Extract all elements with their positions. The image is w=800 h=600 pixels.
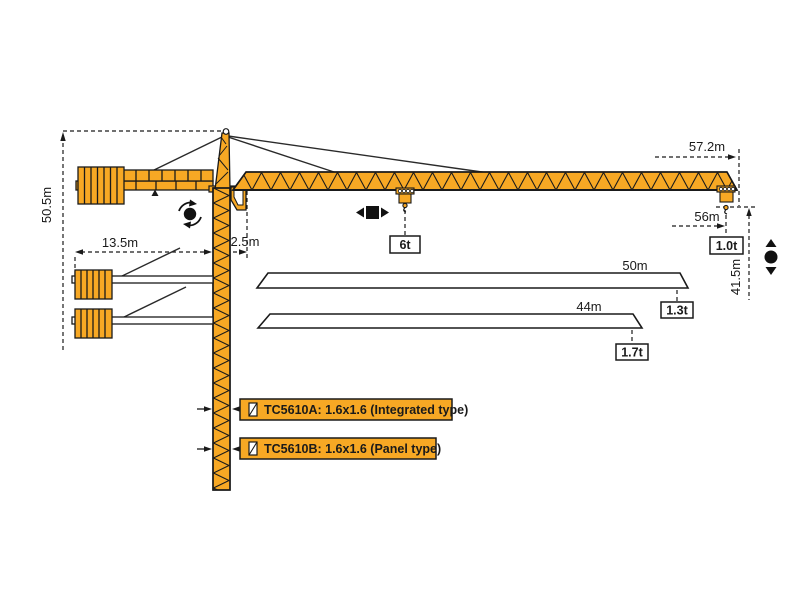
jib-50m-outline (257, 273, 688, 288)
jib-tie-rod-inner (228, 137, 337, 173)
counterjib-radius-label: 13.5m (102, 235, 138, 250)
mast-section-icon (249, 403, 257, 416)
counterjib-tie-rod (152, 136, 224, 171)
model-b-label: TC5610B: 1.6x1.6 (Panel type) (264, 442, 441, 456)
tip-hook (724, 205, 728, 209)
variant1-tie-rod (120, 248, 180, 277)
tower-apex (215, 133, 230, 190)
jib-50m-label: 50m (622, 258, 647, 273)
load-boxes: 6t 1.0t 1.3t 1.7t (390, 236, 743, 360)
jib-44m-label: 44m (576, 299, 601, 314)
crane-spec-diagram: 6t 1.0t 1.3t 1.7t 50.5m 13.5m 2.5m 57.2m… (0, 0, 800, 600)
load-1-0t-label: 1.0t (716, 239, 738, 253)
trolley-travel-icon (356, 206, 389, 219)
counter-jib (76, 167, 213, 204)
counterjib-variants (72, 270, 213, 338)
root-offset-label: 2.5m (231, 234, 260, 249)
total-height-label: 50.5m (39, 187, 54, 223)
mid-hook (403, 203, 407, 207)
variant2-tie-rod (122, 287, 186, 318)
load-1-3t-label: 1.3t (666, 304, 688, 318)
model-a-label: TC5610A: 1.6x1.6 (Integrated type) (264, 403, 468, 417)
mast-section-icon (249, 442, 257, 455)
max-radius-label: 57.2m (689, 139, 725, 154)
jib-tie-rod-outer (228, 136, 489, 173)
diagram-canvas: 6t 1.0t 1.3t 1.7t 50.5m 13.5m 2.5m 57.2m… (0, 0, 800, 600)
main-jib (233, 172, 737, 190)
apex-pin (223, 129, 229, 135)
jib-44m-outline (258, 314, 642, 328)
tie-rods (120, 136, 489, 318)
mid-trolley (396, 188, 414, 212)
hook-radius-label: 56m (694, 209, 719, 224)
alt-jib-outlines (257, 273, 688, 328)
load-1-7t-label: 1.7t (621, 346, 643, 360)
hook-height-label: 41.5m (728, 259, 743, 295)
slewing-icon (179, 200, 201, 229)
tip-trolley (717, 186, 735, 214)
model-labels: TC5610A: 1.6x1.6 (Integrated type) TC561… (197, 399, 468, 459)
load-6t-label: 6t (399, 238, 411, 252)
hoisting-icon (765, 239, 778, 275)
